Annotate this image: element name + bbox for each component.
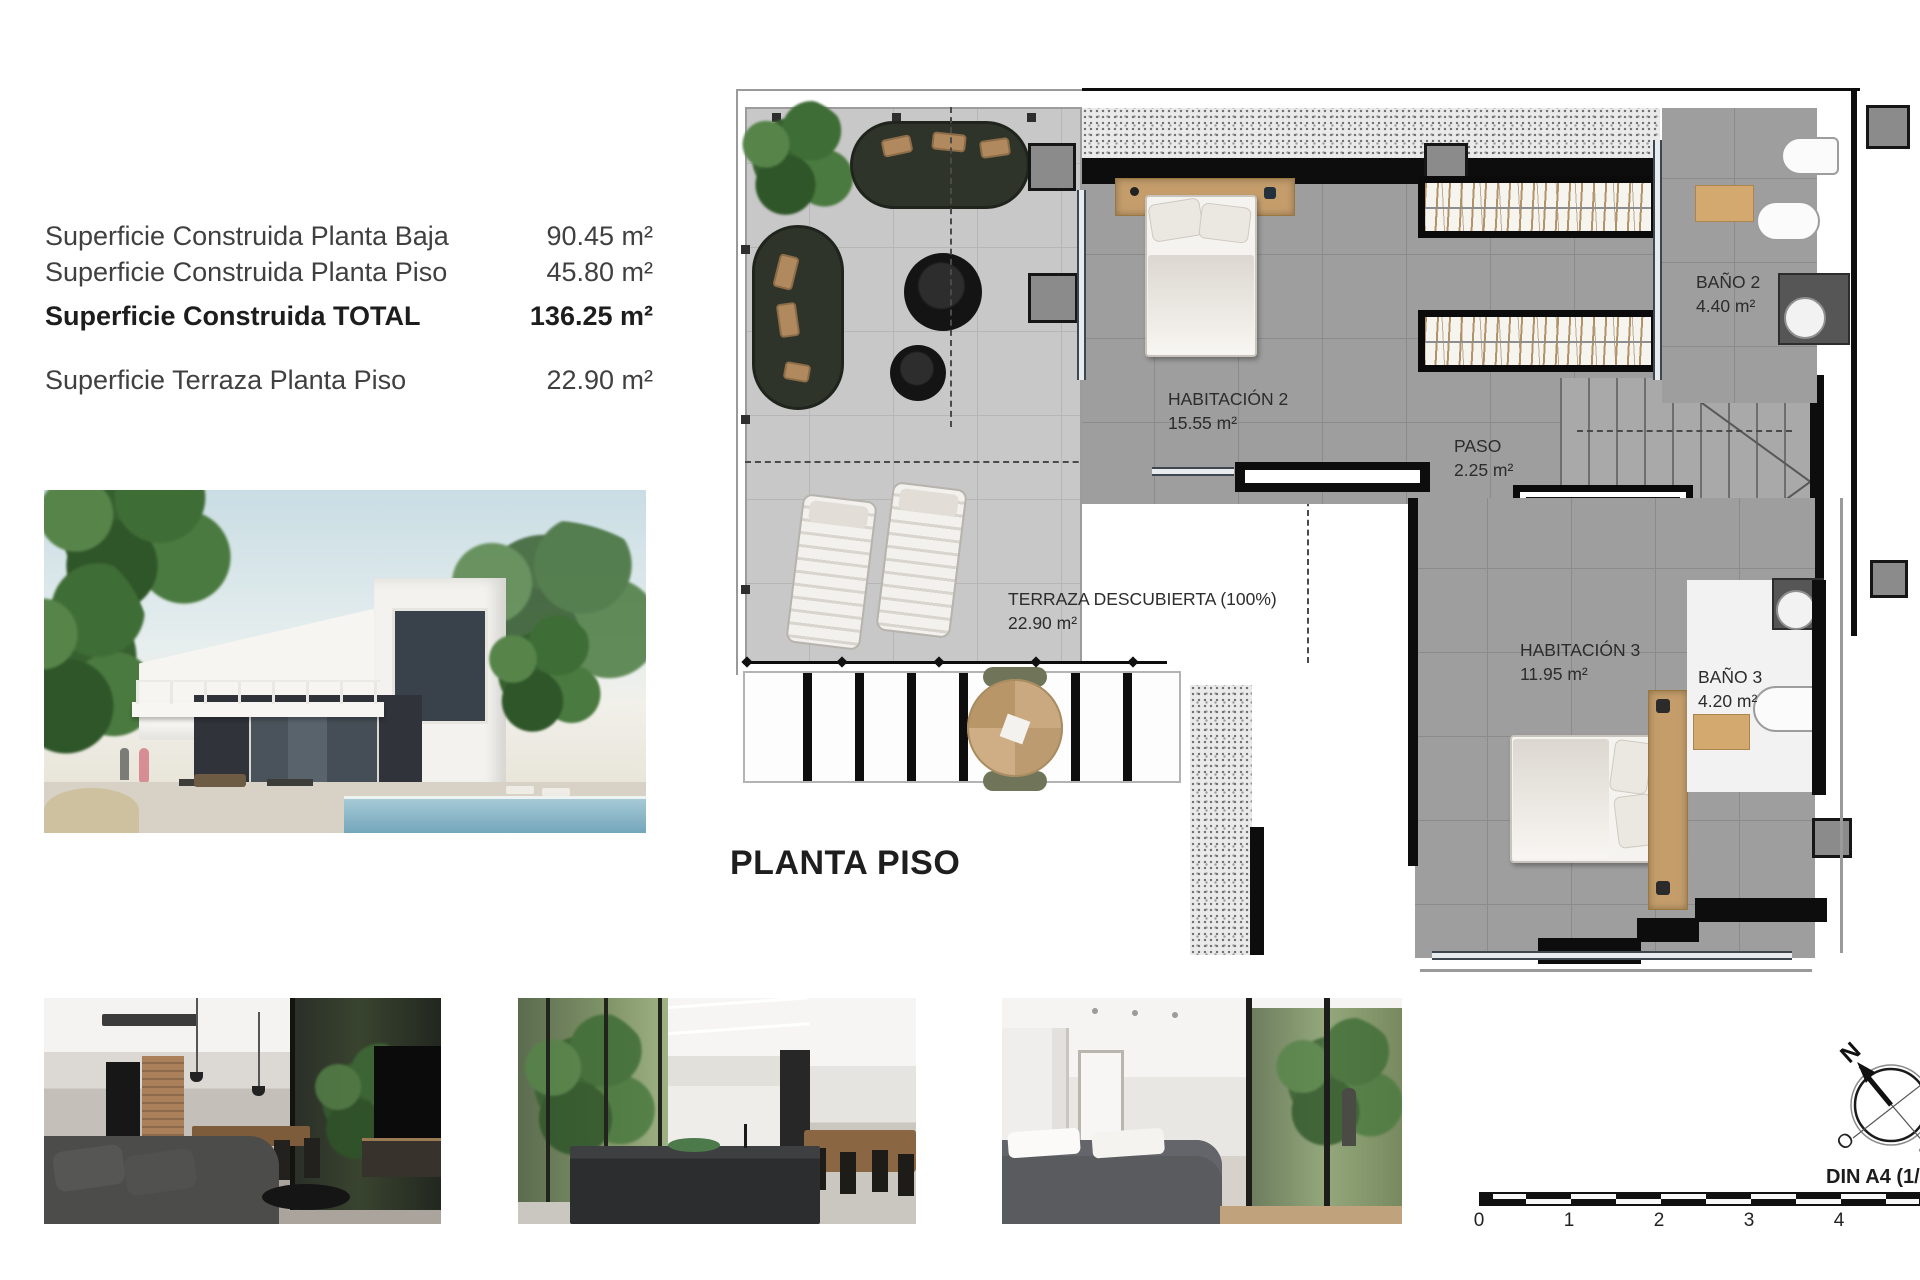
glass-doors	[249, 712, 379, 792]
pergola-beam	[803, 673, 812, 781]
bed-pillow	[1147, 197, 1204, 243]
room-name: BAÑO 2	[1696, 271, 1760, 295]
ground-floor-wall	[1250, 827, 1264, 955]
scale-tick: 3	[1744, 1210, 1755, 1232]
kitchen-island	[570, 1146, 820, 1224]
shower-basin	[1784, 297, 1826, 339]
summary-label: Superficie Construida Planta Piso	[45, 254, 447, 290]
window	[1152, 467, 1234, 476]
room-label-terraza: TERRAZA DESCUBIERTA (100%) 22.90 m²	[1008, 588, 1277, 635]
summary-label: Superficie Construida Planta Baja	[45, 218, 449, 254]
compass-rose: N E O S	[1835, 1040, 1920, 1162]
pergola-beam	[907, 673, 916, 781]
bedside-lamp	[1130, 187, 1139, 196]
villa-exterior-photo	[44, 490, 646, 833]
coffee-table-large	[904, 253, 982, 331]
summary-row: Superficie Terraza Planta Piso 22.90 m²	[45, 362, 653, 398]
step-wall	[1637, 918, 1699, 942]
scale-tick: 0	[1474, 1210, 1485, 1232]
room-label-habitacion2: HABITACIÓN 2 15.55 m²	[1168, 388, 1288, 435]
person-figure	[120, 748, 129, 780]
wardrobe	[1418, 176, 1658, 238]
terrace-glass-door	[1077, 190, 1086, 380]
interior-photo-bedroom	[1002, 998, 1402, 1224]
room-area: 11.95 m²	[1520, 663, 1640, 687]
wall-pillar	[1866, 105, 1910, 149]
railing-post	[741, 585, 750, 594]
pergola-strip	[743, 671, 1181, 783]
compass-label-south: S	[1915, 1140, 1920, 1162]
right-outer-wall	[1851, 88, 1857, 636]
surface-summary: Superficie Construida Planta Baja 90.45 …	[45, 218, 653, 398]
person-figure-pink-dress	[139, 748, 149, 782]
bedroom3-window	[1432, 951, 1792, 960]
compass-label-north: N	[1835, 1040, 1866, 1069]
summary-row-total: Superficie Construida TOTAL 136.25 m²	[45, 298, 653, 334]
room-label-bano2: BAÑO 2 4.40 m²	[1696, 271, 1760, 318]
outdoor-dining-set	[194, 774, 246, 787]
bath-mat	[1695, 185, 1754, 222]
dimension-line	[743, 661, 1167, 664]
railing-post	[741, 415, 750, 424]
summary-label: Superficie Construida TOTAL	[45, 298, 421, 334]
terrace-sofa-left	[752, 225, 844, 410]
coffee-table-small	[890, 345, 946, 401]
outdoor-trees	[1258, 1014, 1402, 1164]
bed-duvet	[1513, 739, 1609, 859]
scale-bar	[1479, 1192, 1920, 1206]
shower-basin	[1776, 590, 1816, 630]
toilet	[1753, 686, 1817, 732]
room-area: 4.20 m²	[1698, 690, 1762, 714]
fruit-bowl	[668, 1138, 720, 1152]
pergola-beam	[855, 673, 864, 781]
person-figure	[1342, 1088, 1356, 1146]
pampas-grass	[44, 788, 139, 833]
interior-photo-living-room	[44, 998, 441, 1224]
step-wall	[1695, 898, 1827, 922]
glass-frame	[290, 998, 295, 1210]
coffee-table	[262, 1184, 350, 1210]
building-outer-edge	[1082, 88, 1860, 91]
bed-pillows	[1007, 1128, 1081, 1159]
compass-outer-ring	[1851, 1065, 1920, 1145]
room-name: HABITACIÓN 2	[1168, 388, 1288, 412]
wardrobe-rail	[1425, 207, 1651, 209]
wood-floor-strip	[1220, 1206, 1402, 1224]
balcony-slab	[132, 702, 384, 717]
wardrobe	[1418, 310, 1658, 372]
bed-duvet	[1148, 255, 1254, 354]
toilet	[1781, 137, 1839, 175]
scale-caption: DIN A4 (1/75)	[1826, 1166, 1920, 1189]
dimension-marker	[1127, 656, 1138, 667]
railing-post	[741, 245, 750, 254]
bed-pillow	[1609, 739, 1654, 796]
gravel-strip	[1190, 685, 1252, 955]
wardrobe-rail	[1425, 341, 1651, 343]
summary-value: 136.25 m²	[530, 298, 653, 334]
lounger-pillow	[898, 488, 959, 517]
window-glass	[1245, 470, 1420, 483]
room-area: 15.55 m²	[1168, 412, 1288, 436]
bed-pillow	[1198, 202, 1252, 244]
bedside-decor	[1656, 699, 1670, 713]
bathroom3-right-wall	[1812, 580, 1826, 795]
tv-screen	[374, 1046, 441, 1138]
summary-label: Superficie Terraza Planta Piso	[45, 362, 406, 398]
bathroom2-window	[1653, 140, 1662, 380]
room-area: 2.25 m²	[1454, 459, 1513, 483]
roof-gravel-strip	[1082, 108, 1660, 158]
scale-tick: 4	[1834, 1210, 1845, 1232]
wall-pillar	[1870, 560, 1908, 598]
bedroom3-headboard	[1648, 690, 1688, 910]
stair-walkline	[1577, 430, 1792, 432]
pool	[344, 796, 646, 833]
scale-tick: 2	[1654, 1210, 1665, 1232]
wall-pillar	[1028, 143, 1076, 191]
wall-pillar	[1028, 273, 1078, 323]
wall-pillar	[1812, 818, 1852, 858]
room-name: TERRAZA DESCUBIERTA (100%)	[1008, 588, 1277, 612]
compass-needle	[1867, 1076, 1891, 1105]
bedroom3-left-wall	[1408, 498, 1418, 866]
plan-outline	[1840, 498, 1843, 953]
sink	[1756, 201, 1820, 241]
compass-label-west: O	[1835, 1128, 1859, 1155]
room-name: BAÑO 3	[1698, 666, 1762, 690]
room-area: 22.90 m²	[1008, 612, 1277, 636]
terrace-plant	[727, 97, 857, 232]
plan-outline	[1420, 969, 1812, 972]
bedside-decor	[1264, 187, 1276, 199]
summary-value: 45.80 m²	[546, 254, 653, 290]
summary-value: 22.90 m²	[546, 362, 653, 398]
ceiling-ac-vent	[102, 1014, 198, 1026]
room-name: PASO	[1454, 435, 1513, 459]
lounger-pillow	[808, 500, 869, 529]
slider-frames	[1246, 998, 1252, 1210]
bedside-decor	[1656, 881, 1670, 895]
pendant-lamp-cords	[196, 998, 198, 1074]
railing-post	[1027, 113, 1036, 122]
bath-mat	[1693, 714, 1750, 750]
sofa-pillow	[931, 131, 967, 152]
pergola-beam	[1123, 673, 1132, 781]
scale-tick: 1	[1564, 1210, 1575, 1232]
plan-outline	[736, 89, 1084, 91]
room-name: HABITACIÓN 3	[1520, 639, 1640, 663]
ceiling-spotlights	[1092, 1008, 1098, 1014]
balcony-railing	[136, 680, 380, 704]
pergola-beam	[1071, 673, 1080, 781]
faucet	[744, 1124, 747, 1148]
scale-bar-row	[1481, 1199, 1919, 1204]
tv-sideboard	[362, 1138, 441, 1177]
room-label-habitacion3: HABITACIÓN 3 11.95 m²	[1520, 639, 1640, 686]
palm-right	[474, 610, 604, 750]
glass-frames	[546, 998, 550, 1202]
plan-title: PLANTA PISO	[730, 844, 960, 883]
summary-value: 90.45 m²	[546, 218, 653, 254]
brochure-page: Superficie Construida Planta Baja 90.45 …	[0, 0, 1920, 1280]
floor-plan: TERRAZA DESCUBIERTA (100%) 22.90 m² HABI…	[732, 85, 1918, 975]
room-label-bano3: BAÑO 3 4.20 m²	[1698, 666, 1762, 713]
summary-row: Superficie Construida Planta Baja 90.45 …	[45, 218, 653, 254]
terrace-dashed-line	[950, 107, 952, 427]
sun-loungers	[506, 786, 534, 794]
room-area: 4.40 m²	[1696, 295, 1760, 319]
interior-photo-kitchen	[518, 998, 916, 1224]
summary-row: Superficie Construida Planta Piso 45.80 …	[45, 254, 653, 290]
room-label-paso: PASO 2.25 m²	[1454, 435, 1513, 482]
